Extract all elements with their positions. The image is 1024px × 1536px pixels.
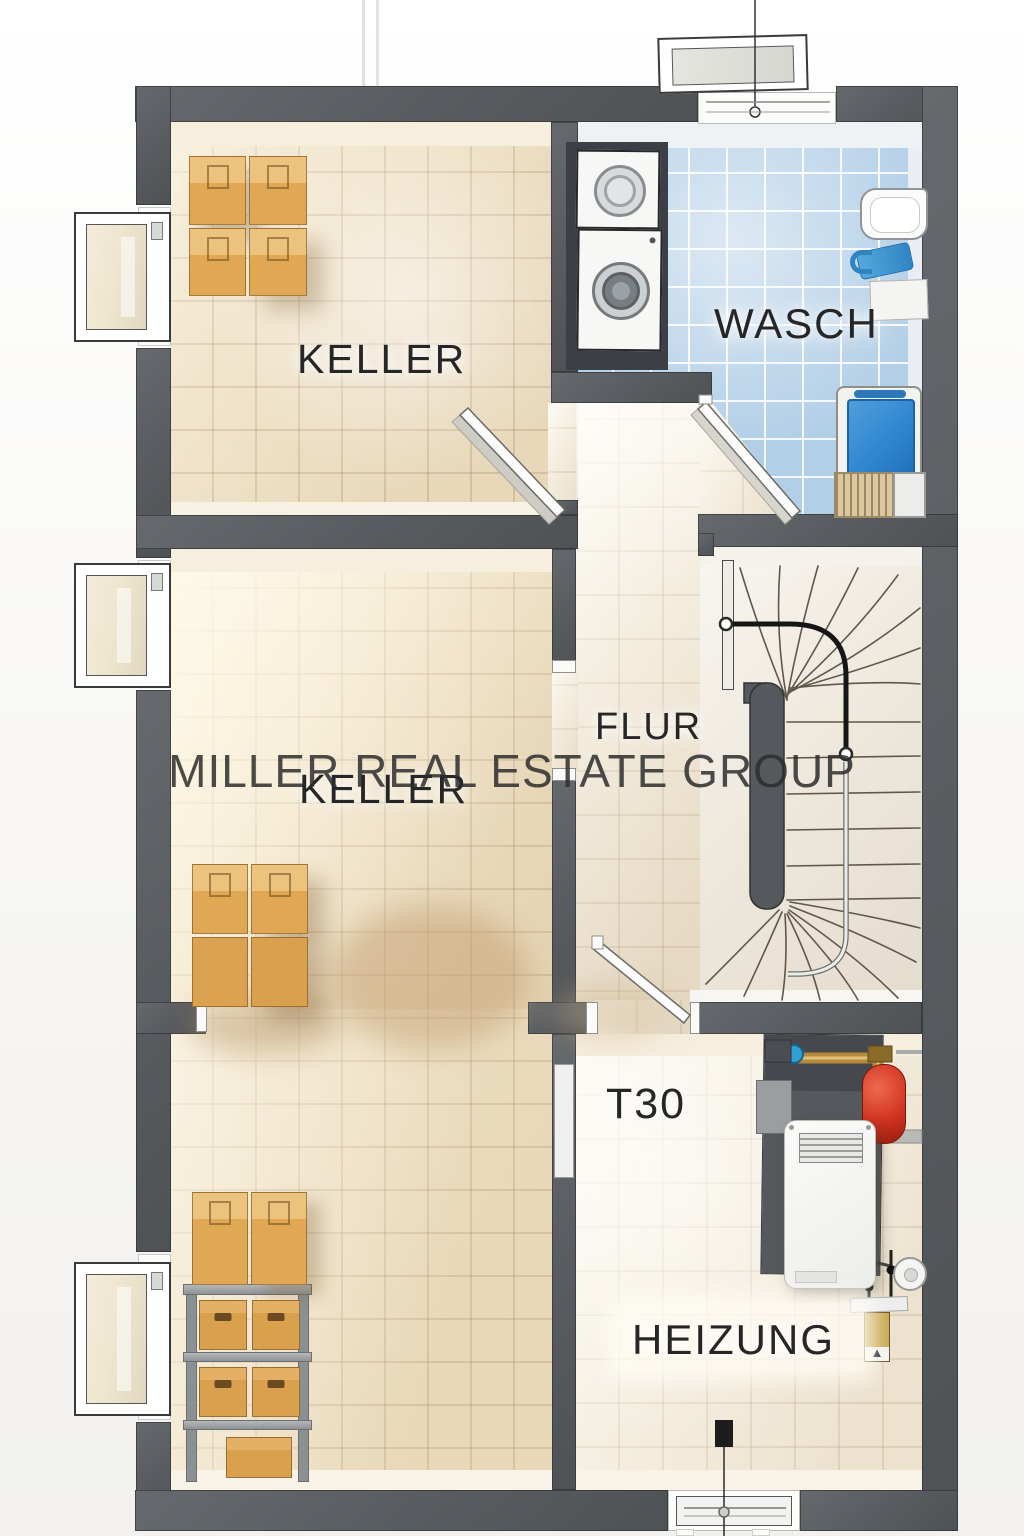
wall-sink xyxy=(860,188,928,240)
drain-funnel xyxy=(893,1257,927,1291)
washboard xyxy=(834,472,896,518)
room-label-keller-top: KELLER xyxy=(297,336,466,383)
door-leaf-t30 xyxy=(592,936,690,1023)
boiler-vent-grille xyxy=(799,1133,863,1163)
decor-tile xyxy=(893,472,926,518)
watermark-text: MILLER REAL ESTATE GROUP xyxy=(0,744,1024,798)
boiler-panel-line xyxy=(795,1271,837,1283)
room-label-heizung: HEIZUNG xyxy=(632,1316,835,1364)
tub-handle xyxy=(854,390,906,398)
door-leaf-wasch xyxy=(691,395,800,524)
boiler xyxy=(784,1120,876,1289)
gauge-logo-icon: ▲ xyxy=(865,1346,889,1359)
dimension-line-bottom xyxy=(684,1447,786,1536)
dimension-line-top xyxy=(706,0,830,117)
sink-bowl xyxy=(870,197,920,233)
boiler-screw xyxy=(866,1125,871,1130)
fuel-gauge-device: ▲ xyxy=(864,1312,890,1362)
fire-door-label: T30 xyxy=(606,1080,686,1129)
boiler-screw xyxy=(789,1125,794,1130)
room-label-wasch: WASCH xyxy=(714,300,879,348)
room-label-flur: FLUR xyxy=(595,706,702,749)
floor-plan: ▲ KELLER WASCH FLUR KELLER T30 HEIZUNG M… xyxy=(0,0,1024,1536)
door-leaf-keller-top xyxy=(452,408,565,524)
dustpan-handle xyxy=(850,250,872,274)
funnel-hole xyxy=(904,1268,918,1282)
